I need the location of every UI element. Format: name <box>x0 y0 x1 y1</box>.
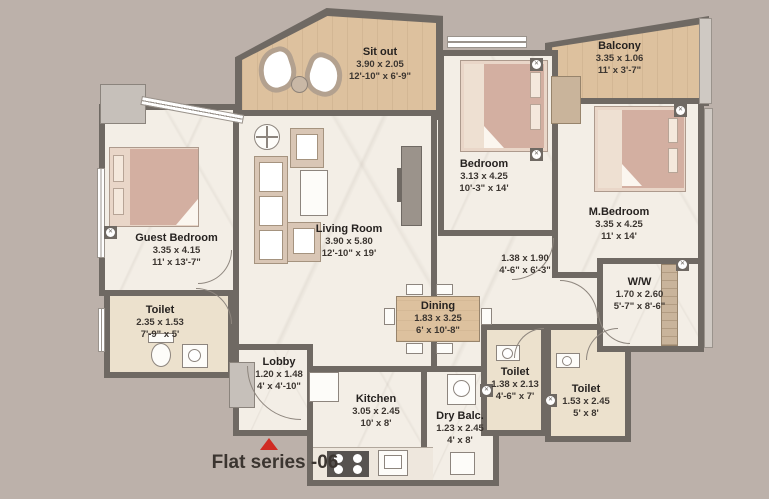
balcony-ledge <box>699 18 712 104</box>
pillow <box>530 72 541 98</box>
room-label-dining: Dining 1.83 x 3.25 6' x 10'-8" <box>398 300 478 337</box>
room-name: Toilet <box>548 383 624 396</box>
pillow <box>113 188 124 215</box>
sofa-cushion <box>259 196 283 226</box>
pillow <box>530 104 541 130</box>
room-label-guest-bedroom: Guest Bedroom 3.35 x 4.15 11' x 13'-7" <box>109 232 244 269</box>
room-dim-metric: 1.53 x 2.45 <box>548 396 624 408</box>
room-name: Dry Balc. <box>420 410 500 423</box>
room-name: Toilet <box>110 304 210 317</box>
room-name: Lobby <box>236 356 322 369</box>
tv-unit <box>401 146 422 226</box>
utility-sink <box>450 452 475 475</box>
column-marker-icon <box>530 58 543 71</box>
kitchen-sink-basin <box>384 455 402 469</box>
window <box>97 168 105 258</box>
column-marker-icon <box>674 104 687 117</box>
room-label-toilet-guest: Toilet 2.35 x 1.53 7'-9" x 5' <box>110 304 210 341</box>
window <box>447 36 527 48</box>
room-name: Bedroom <box>434 158 534 171</box>
stove-burner <box>353 465 362 474</box>
entrance-marker-icon <box>260 438 278 450</box>
side-table-line <box>256 136 278 138</box>
room-dim-imperial: 5' x 8' <box>548 408 624 420</box>
floor-plan: Sit out 3.90 x 2.05 12'-10" x 6'-9" Balc… <box>0 0 769 499</box>
room-name: Guest Bedroom <box>109 232 244 245</box>
room-dim-metric: 3.05 x 2.45 <box>326 406 426 418</box>
room-dim-metric: 1.38 x 1.90 <box>486 253 564 265</box>
side-ledge <box>704 108 713 348</box>
room-dim-imperial: 12'-10" x 6'-9" <box>330 71 430 83</box>
sofa-cushion <box>259 230 283 260</box>
room-dim-metric: 1.23 x 2.45 <box>420 423 500 435</box>
sofa-cushion <box>259 162 283 192</box>
washbasin-bowl <box>502 348 513 359</box>
room-name: Sit out <box>330 46 430 59</box>
room-label-balcony: Balcony 3.35 x 1.06 11' x 3'-7" <box>572 40 667 77</box>
room-dim-imperial: 12'-10" x 19' <box>289 248 409 260</box>
washbasin-bowl <box>562 356 572 366</box>
pillow <box>668 148 678 173</box>
column <box>100 84 146 124</box>
window <box>98 308 105 352</box>
room-dim-metric: 3.13 x 4.25 <box>434 171 534 183</box>
room-dim-imperial: 11' x 13'-7" <box>109 257 244 269</box>
room-label-ww: W/W 1.70 x 2.60 5'-7" x 8'-6" <box>592 276 687 313</box>
tv <box>397 168 402 202</box>
dining-chair <box>384 308 395 325</box>
room-name: Dining <box>398 300 478 313</box>
room-dim-metric: 3.90 x 2.05 <box>330 59 430 71</box>
room-name: Kitchen <box>326 393 426 406</box>
room-name: Living Room <box>289 223 409 236</box>
dining-chair <box>481 308 492 325</box>
room-label-dry-balcony: Dry Balc. 1.23 x 2.45 4' x 8' <box>420 410 500 447</box>
room-label-lobby: Lobby 1.20 x 1.48 4' x 4'-10" <box>236 356 322 393</box>
room-name: M.Bedroom <box>569 206 669 219</box>
room-label-sitout: Sit out 3.90 x 2.05 12'-10" x 6'-9" <box>330 46 430 83</box>
wardrobe <box>551 76 581 124</box>
pillow <box>668 118 678 143</box>
room-dim-metric: 3.35 x 4.15 <box>109 245 244 257</box>
room-label-passage: 1.38 x 1.90 4'-6" x 6'-3" <box>486 253 564 276</box>
room-dim-metric: 3.35 x 4.25 <box>569 219 669 231</box>
dining-chair <box>406 343 423 354</box>
room-name: Toilet <box>479 366 551 379</box>
column-marker-icon <box>676 258 689 271</box>
wc-bowl <box>151 343 171 367</box>
room-label-toilet-common: Toilet 1.38 x 2.13 4'-6" x 7' <box>479 366 551 403</box>
room-label-living: Living Room 3.90 x 5.80 12'-10" x 19' <box>289 223 409 260</box>
room-dim-imperial: 4'-6" x 6'-3" <box>486 265 564 277</box>
room-dim-imperial: 4'-6" x 7' <box>479 391 551 403</box>
room-dim-metric: 1.70 x 2.60 <box>592 289 687 301</box>
room-label-master-bedroom: M.Bedroom 3.35 x 4.25 11' x 14' <box>569 206 669 243</box>
room-name: Balcony <box>572 40 667 53</box>
sitout-table <box>291 76 308 93</box>
room-dim-imperial: 11' x 14' <box>569 231 669 243</box>
washing-machine-drum <box>453 380 470 397</box>
armchair-cushion <box>296 134 318 160</box>
room-dim-imperial: 4' x 8' <box>420 435 500 447</box>
room-dim-imperial: 7'-9" x 5' <box>110 329 210 341</box>
bed-sheet <box>464 64 484 148</box>
room-dim-metric: 3.35 x 1.06 <box>572 53 667 65</box>
pillow <box>113 155 124 182</box>
room-dim-imperial: 10' x 8' <box>326 418 426 430</box>
dining-chair <box>406 284 423 295</box>
room-dim-imperial: 4' x 4'-10" <box>236 381 322 393</box>
room-label-bedroom: Bedroom 3.13 x 4.25 10'-3" x 14' <box>434 158 534 195</box>
bed-sheet <box>598 110 622 188</box>
dining-chair <box>436 284 453 295</box>
coffee-table <box>300 170 328 216</box>
stove-burner <box>353 454 362 463</box>
room-dim-metric: 1.38 x 2.13 <box>479 379 551 391</box>
room-dim-imperial: 11' x 3'-7" <box>572 65 667 77</box>
room-dim-imperial: 5'-7" x 8'-6" <box>592 301 687 313</box>
room-dim-metric: 1.83 x 3.25 <box>398 313 478 325</box>
room-dim-metric: 2.35 x 1.53 <box>110 317 210 329</box>
flat-series-label: Flat series -06 <box>205 452 345 474</box>
room-dim-imperial: 6' x 10'-8" <box>398 325 478 337</box>
room-name: W/W <box>592 276 687 289</box>
dining-chair <box>436 343 453 354</box>
room-label-toilet-master: Toilet 1.53 x 2.45 5' x 8' <box>548 383 624 420</box>
room-dim-metric: 3.90 x 5.80 <box>289 236 409 248</box>
room-dim-metric: 1.20 x 1.48 <box>236 369 322 381</box>
room-dim-imperial: 10'-3" x 14' <box>434 183 534 195</box>
washbasin-bowl <box>188 349 201 362</box>
room-label-kitchen: Kitchen 3.05 x 2.45 10' x 8' <box>326 393 426 430</box>
